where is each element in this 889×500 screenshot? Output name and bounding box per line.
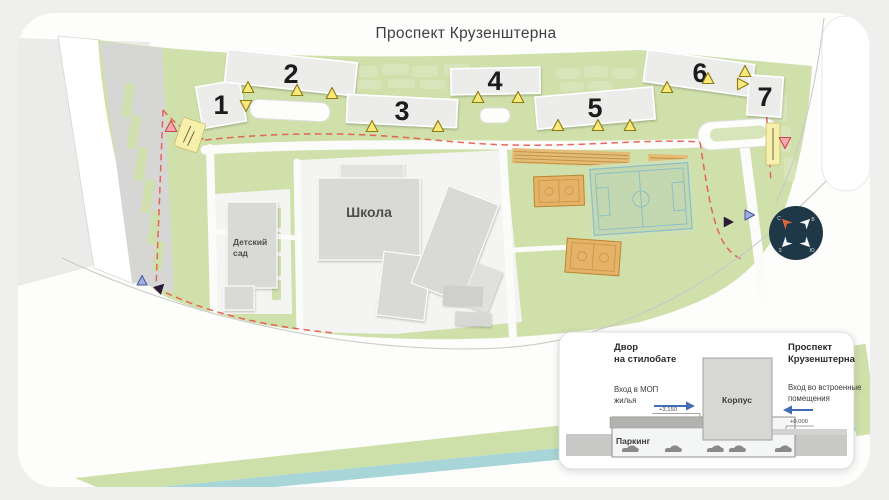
school-label: Школа [346,204,392,220]
building-7-number[interactable]: 7 [757,82,772,112]
svg-text:+3,150: +3,150 [659,407,677,413]
inset-right-title-2: Крузенштерна [788,354,856,365]
street-name-label: Проспект Крузенштерна [376,25,557,42]
inset-left-note-2: жилья [614,396,636,405]
inset-left-note-1: Вход в МОП [614,385,658,394]
soccer-field [586,158,697,239]
site-plan-map: Школа Детский сад 1 [0,0,889,500]
compass: С В Ю З [769,206,823,260]
compass-west-letter: З [778,248,781,254]
inset-right-title-1: Проспект [788,342,832,353]
inset-korpus-label: Корпус [722,395,752,405]
building-4[interactable]: 4 [451,66,540,96]
compass-north-letter: С [777,216,781,222]
section-inset-card: Корпус Паркинг Двор на стилобате Проспек… [559,332,861,469]
inset-left-title-2: на стилобате [614,354,676,365]
service-label-right [766,123,780,165]
basketball-court-2 [565,238,621,276]
building-1[interactable]: 1 [196,79,247,128]
building-7[interactable]: 7 [747,75,784,117]
building-2-number[interactable]: 2 [283,59,298,89]
building-4-number[interactable]: 4 [487,66,502,96]
building-5-number[interactable]: 5 [587,93,602,123]
building-1-number[interactable]: 1 [213,90,228,120]
inset-street-surface [772,429,847,435]
road-offsite-right [822,16,870,191]
inset-parking-label: Паркинг [616,436,651,446]
inset-right-note-1: Вход во встроенные [788,383,861,392]
basketball-court-1 [533,175,584,207]
inset-left-title-1: Двор [614,342,638,353]
kindergarten-label-line2: сад [233,248,249,258]
inset-right-note-2: помещения [788,394,830,403]
inset-stylobate-deck [610,417,705,428]
svg-text:+0,000: +0,000 [790,419,808,425]
compass-south-letter: Ю [809,248,814,254]
building-3[interactable]: 3 [346,94,457,127]
compass-circle [769,206,823,260]
building-3-number[interactable]: 3 [394,96,409,126]
kindergarten-label-line1: Детский [233,237,267,247]
